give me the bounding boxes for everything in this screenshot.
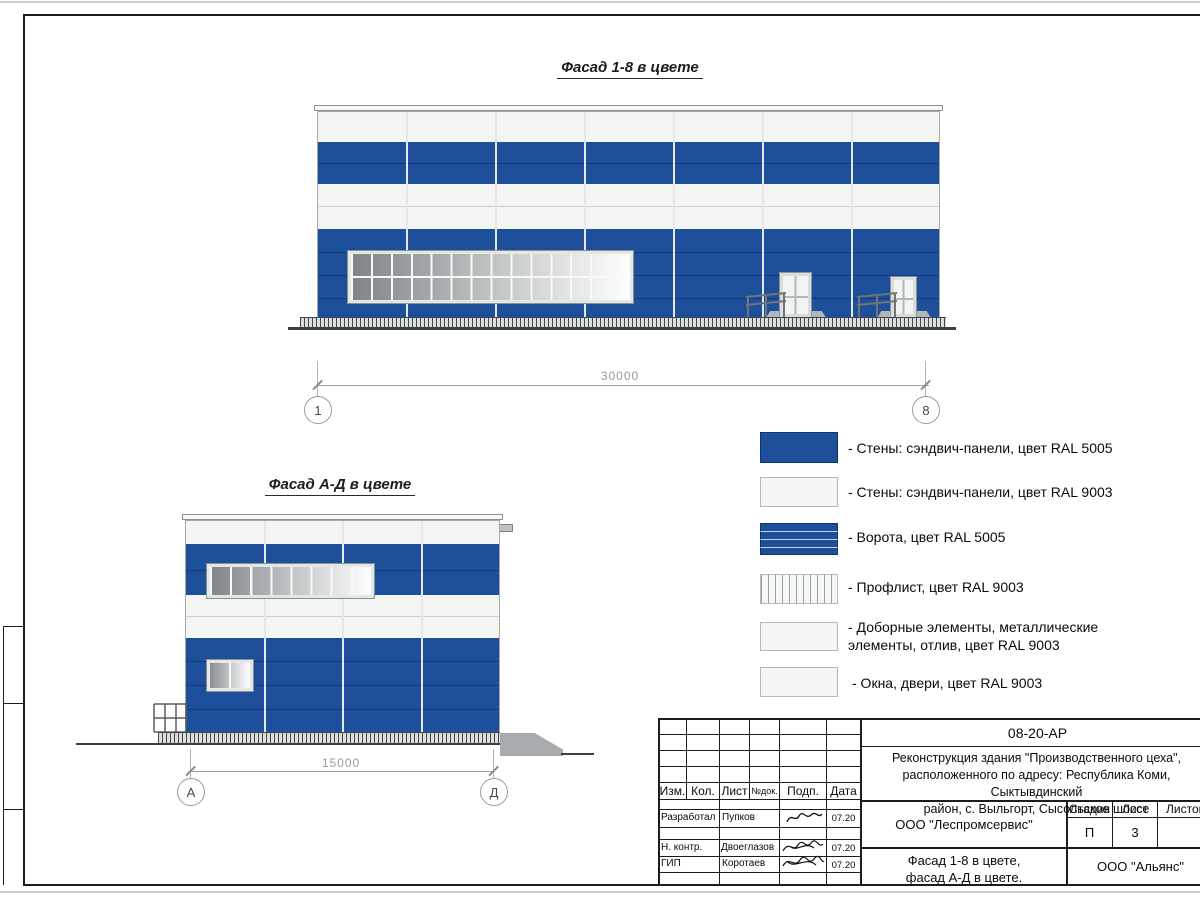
frame-top: [23, 14, 1200, 16]
railing: [153, 703, 187, 733]
drawing-title-line: Фасад 1-8 в цвете,: [862, 852, 1066, 869]
titleblock-line: [658, 799, 860, 800]
dimension-value: 30000: [560, 369, 680, 383]
axis-label: 8: [922, 403, 929, 418]
axis-marker-8: 8: [912, 396, 940, 424]
project-line: Реконструкция здания "Производственного …: [860, 750, 1200, 767]
titleblock-line: [658, 718, 1200, 720]
sheet-bottom-edge: [0, 891, 1200, 893]
col-header-data: Дата: [827, 783, 860, 798]
titleblock-line: [658, 827, 860, 828]
margin-cell-divider: [3, 703, 24, 704]
name-pupkov: Пупков: [722, 812, 778, 823]
railing: [745, 285, 787, 319]
stage-value: П: [1067, 819, 1112, 845]
date-ncontrol: 07.20: [827, 841, 860, 855]
sheet-top-edge: [0, 1, 1200, 3]
dimension-line: [317, 385, 929, 386]
name-korotaev: Коротаев: [722, 858, 778, 869]
project-line: расположенного по адресу: Республика Ком…: [860, 767, 1200, 801]
name-dvoeglazov: Двоеглазов: [721, 842, 779, 853]
legend-label: - Ворота, цвет RAL 5005: [848, 528, 1178, 546]
drawing-title-line: фасад А-Д в цвете.: [862, 869, 1066, 886]
col-header-list: Лист: [720, 783, 749, 798]
axis-marker-1: 1: [304, 396, 332, 424]
legend-swatch-profiled-sheet: [760, 574, 838, 604]
sheet-number: 3: [1113, 819, 1157, 845]
col-header-izm: Изм.: [659, 783, 686, 798]
legend-label: - Стены: сэндвич-панели, цвет RAL 9003: [848, 483, 1178, 501]
contractor-org: ООО "Альянс": [1068, 849, 1200, 884]
legend-swatch-gates: [760, 523, 838, 555]
legend-label: - Профлист, цвет RAL 9003: [848, 578, 1178, 596]
facade-ad-ribbon-window: [207, 564, 374, 598]
date-gip: 07.20: [827, 858, 860, 872]
axis-label: А: [187, 785, 196, 800]
axis-marker-d: Д: [480, 778, 508, 806]
facade-ad-small-window: [207, 660, 253, 691]
stage-label: Стадия: [1067, 801, 1112, 816]
col-header-podp: Подп.: [780, 783, 826, 798]
drawing-title-cell: Фасад 1-8 в цвете, фасад А-Д в цвете.: [862, 852, 1066, 886]
titleblock-line: [658, 856, 860, 857]
signature-korotaev: [780, 854, 826, 871]
legend-swatch-walls-white: [760, 477, 838, 507]
sheet-label: Лист: [1113, 801, 1157, 816]
titleblock-line: [658, 809, 860, 810]
extension-line: [317, 361, 318, 396]
col-header-kol: Кол.: [687, 783, 719, 798]
dimension-value: 15000: [281, 756, 401, 770]
margin-cell-divider: [3, 626, 24, 627]
dimension-line: [190, 771, 493, 772]
role-developed: Разработал: [661, 812, 719, 823]
railing: [856, 285, 898, 319]
facade-ad-title: Фасад А-Д в цвете: [190, 476, 490, 496]
legend-label: - Окна, двери, цвет RAL 9003: [852, 674, 1182, 692]
margin-cell-divider: [3, 809, 24, 810]
margin-cells-line: [3, 626, 4, 885]
extension-line: [925, 361, 926, 396]
titleblock-line: [658, 718, 660, 885]
legend-swatch-walls-blue: [760, 432, 838, 463]
facade-ad-outline: [185, 520, 500, 733]
design-org: ООО "Леспромсервис": [862, 803, 1066, 846]
legend-swatch-trim-elements: [760, 622, 838, 651]
titleblock-line: [658, 872, 860, 873]
titleblock-line: [658, 839, 860, 840]
axis-marker-a: А: [177, 778, 205, 806]
legend-swatch-windows-doors: [760, 667, 838, 697]
axis-label: Д: [490, 785, 499, 800]
titleblock-line: [719, 718, 720, 885]
titleblock-line: [860, 746, 1200, 747]
signature-dvoeglazov: [781, 838, 825, 855]
frame-left: [23, 14, 25, 885]
col-header-ndok: №док.: [750, 783, 779, 798]
signature-pupkov: [784, 810, 824, 826]
sheets-label: Листов: [1158, 801, 1200, 816]
drawing-sheet: Фасад 1-8 в цвете 30000 1 8 Фасад А-Д в …: [0, 0, 1200, 900]
titleblock-line: [658, 766, 860, 767]
ground-line: [76, 743, 500, 745]
axis-label: 1: [314, 403, 321, 418]
titleblock-line: [658, 734, 860, 735]
legend-label: - Доборные элементы, металлические элеме…: [848, 618, 1188, 654]
ground-line: [288, 327, 956, 330]
date-developed: 07.20: [827, 811, 860, 825]
doc-code: 08-20-АР: [862, 722, 1200, 744]
ramp: [500, 733, 563, 756]
ground-line: [561, 753, 594, 755]
legend-label: - Стены: сэндвич-панели, цвет RAL 5005: [848, 439, 1178, 457]
role-ncontrol: Н. контр.: [661, 842, 719, 853]
role-gip: ГИП: [661, 858, 719, 869]
extension-line: [190, 749, 191, 779]
facade-1-8-ribbon-window: [348, 251, 633, 303]
titleblock-line: [658, 750, 860, 751]
extension-line: [493, 749, 494, 779]
facade-1-8-title: Фасад 1-8 в цвете: [480, 59, 780, 79]
